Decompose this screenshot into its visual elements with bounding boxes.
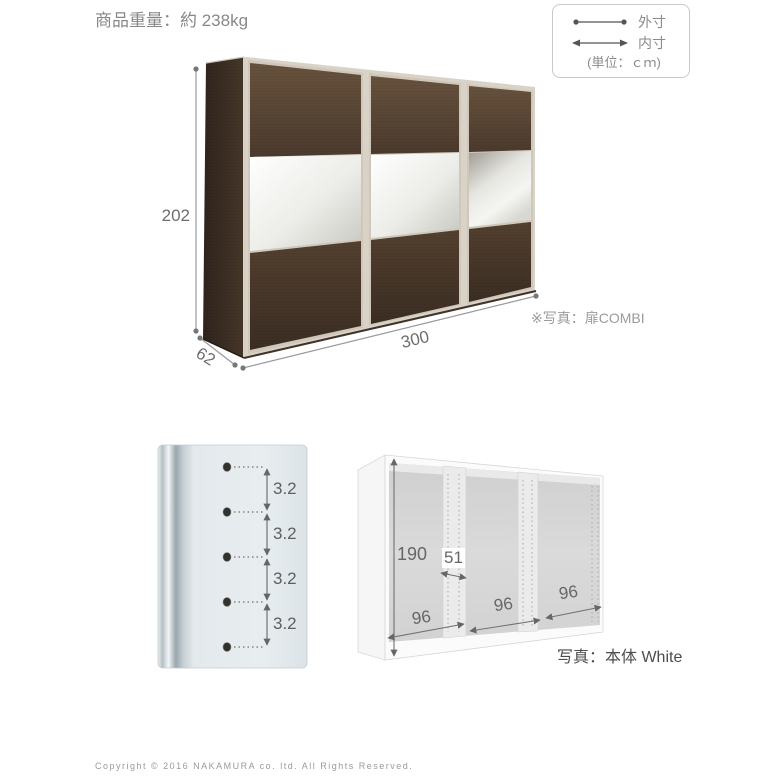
inner-height-label: 190 (397, 544, 427, 565)
body-photo-note: 写真：本体 White (557, 643, 682, 667)
pitch-label-4: 3.2 (273, 614, 297, 634)
sliding-door-1 (248, 60, 363, 354)
pitch-label-1: 3.2 (273, 479, 297, 499)
legend-outer-label: 外寸 (638, 12, 666, 32)
pitch-label-2: 3.2 (273, 524, 297, 544)
inner-width-label-2: 96 (493, 594, 515, 616)
legend-inner-row: 内寸 (553, 32, 689, 53)
frame-illustration (358, 455, 603, 660)
sliding-door-2 (369, 73, 461, 326)
mirror-panel (469, 151, 531, 227)
dimension-legend-box: 外寸 内寸 (単位：ｃｍ) (552, 4, 690, 78)
wardrobe-illustration (203, 57, 536, 358)
legend-unit-label: (単位：ｃｍ) (553, 54, 689, 73)
height-dim-label: 202 (150, 206, 190, 226)
mirror-panel (250, 155, 361, 251)
outer-dim-icon (572, 17, 628, 27)
inner-dim-icon (572, 38, 628, 48)
product-spec-page: { "header": { "weight_label": "商品重量：約 23… (0, 0, 781, 781)
legend-inner-label: 内寸 (638, 33, 666, 53)
mirror-panel (371, 153, 459, 238)
frame-partition-2 (518, 472, 538, 632)
inner-width-label-3: 96 (558, 582, 580, 605)
copyright-text: Copyright © 2016 NAKAMURA co. ltd. All R… (95, 761, 413, 771)
frame-side-panel (358, 455, 385, 660)
product-weight-label: 商品重量：約 238kg (95, 6, 248, 31)
wardrobe-front-edge (243, 57, 246, 358)
door-photo-note: ※写真：扉COMBI (531, 308, 645, 328)
legend-outer-row: 外寸 (553, 11, 689, 32)
sliding-door-3 (467, 84, 533, 304)
inner-depth-label: 51 (442, 548, 465, 568)
inner-width-label-1: 96 (411, 607, 433, 630)
pitch-label-3: 3.2 (273, 569, 297, 589)
